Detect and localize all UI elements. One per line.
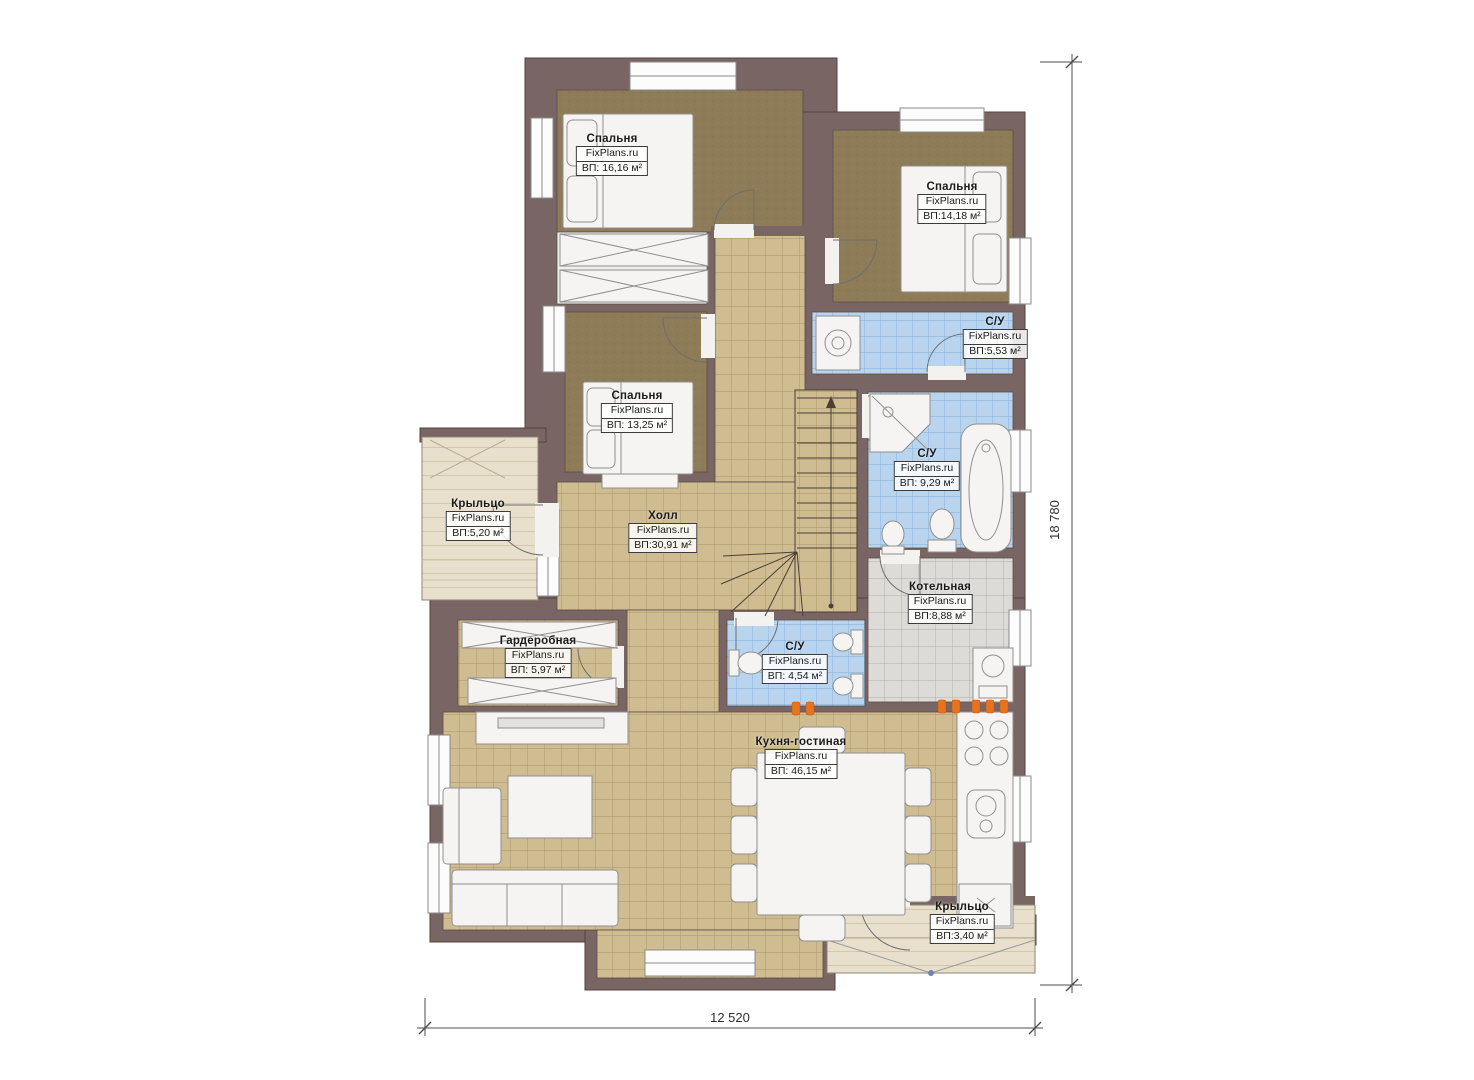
room-name: Гардеробная xyxy=(500,635,577,647)
brand-watermark: FixPlans.ru xyxy=(766,750,836,764)
room-name: С/У xyxy=(985,316,1004,328)
room-label-box: FixPlans.ru ВП: 5,97 м² xyxy=(505,648,571,678)
room-label-bathroom-small: С/У FixPlans.ru ВП: 4,54 м² xyxy=(762,641,828,684)
room-label-box: FixPlans.ru ВП:5,53 м² xyxy=(963,329,1028,359)
brand-watermark: FixPlans.ru xyxy=(602,404,672,418)
room-area: ВП:5,53 м² xyxy=(964,344,1027,359)
brand-watermark: FixPlans.ru xyxy=(909,595,972,609)
room-name: Крыльцо xyxy=(935,901,989,913)
room-label-box: FixPlans.ru ВП: 16,16 м² xyxy=(576,146,648,176)
floor-stairs xyxy=(795,390,857,612)
floor-plan-drawing xyxy=(0,0,1474,1080)
room-area: ВП: 13,25 м² xyxy=(602,418,672,433)
toilet xyxy=(729,650,764,676)
floor-plan-page: Спальня FixPlans.ru ВП: 16,16 м² Спальня… xyxy=(0,0,1474,1080)
room-area: ВП:8,88 м² xyxy=(909,609,972,624)
room-label-box: FixPlans.ru ВП: 46,15 м² xyxy=(765,749,837,779)
room-label-box: FixPlans.ru ВП: 13,25 м² xyxy=(601,403,673,433)
dimension-height-label: 18 780 xyxy=(1047,485,1067,555)
brand-watermark: FixPlans.ru xyxy=(895,462,959,476)
room-name: Кухня-гостиная xyxy=(756,736,847,748)
sofa xyxy=(452,870,618,926)
room-label-box: FixPlans.ru ВП:8,88 м² xyxy=(908,594,973,624)
boiler-unit xyxy=(973,648,1013,702)
room-area: ВП: 16,16 м² xyxy=(577,161,647,176)
sink xyxy=(882,521,904,554)
room-area: ВП:5,20 м² xyxy=(447,526,510,541)
room-label-porch-bottom: Крыльцо FixPlans.ru ВП:3,40 м² xyxy=(930,901,995,944)
room-label-kitchen-living: Кухня-гостиная FixPlans.ru ВП: 46,15 м² xyxy=(756,736,847,779)
room-label-box: FixPlans.ru ВП:14,18 м² xyxy=(917,194,986,224)
room-name: С/У xyxy=(917,448,936,460)
coffee-table xyxy=(508,776,592,838)
room-label-boiler-room: Котельная FixPlans.ru ВП:8,88 м² xyxy=(908,581,973,624)
room-area: ВП: 46,15 м² xyxy=(766,764,836,779)
dimension-width-label: 12 520 xyxy=(695,1010,765,1025)
room-label-box: FixPlans.ru ВП:30,91 м² xyxy=(628,523,697,553)
room-name: С/У xyxy=(785,641,804,653)
washing-machine xyxy=(816,316,860,370)
room-label-box: FixPlans.ru ВП:3,40 м² xyxy=(930,914,995,944)
brand-watermark: FixPlans.ru xyxy=(577,147,647,161)
room-name: Крыльцо xyxy=(451,498,505,510)
room-label-bedroom-1: Спальня FixPlans.ru ВП: 16,16 м² xyxy=(576,133,648,176)
tv-console xyxy=(476,712,628,744)
room-label-wardrobe-room: Гардеробная FixPlans.ru ВП: 5,97 м² xyxy=(500,635,577,678)
room-name: Спальня xyxy=(586,133,637,145)
floor-hall-passage xyxy=(627,610,719,712)
room-name: Котельная xyxy=(909,581,971,593)
room-label-porch-left: Крыльцо FixPlans.ru ВП:5,20 м² xyxy=(446,498,511,541)
brand-watermark: FixPlans.ru xyxy=(506,649,570,663)
room-area: ВП:30,91 м² xyxy=(629,538,696,553)
toilet xyxy=(928,509,956,552)
room-label-bathroom-top: С/У FixPlans.ru ВП:5,53 м² xyxy=(963,316,1028,359)
brand-watermark: FixPlans.ru xyxy=(918,195,985,209)
brand-watermark: FixPlans.ru xyxy=(763,655,827,669)
shower xyxy=(870,394,930,452)
room-area: ВП: 9,29 м² xyxy=(895,476,959,491)
room-label-box: FixPlans.ru ВП: 4,54 м² xyxy=(762,654,828,684)
brand-watermark: FixPlans.ru xyxy=(629,524,696,538)
room-area: ВП:3,40 м² xyxy=(931,929,994,944)
room-label-box: FixPlans.ru ВП: 9,29 м² xyxy=(894,461,960,491)
room-area: ВП: 4,54 м² xyxy=(763,669,827,684)
room-label-bedroom-3: Спальня FixPlans.ru ВП: 13,25 м² xyxy=(601,390,673,433)
room-name: Холл xyxy=(648,510,678,522)
room-label-bedroom-2: Спальня FixPlans.ru ВП:14,18 м² xyxy=(917,181,986,224)
room-area: ВП:14,18 м² xyxy=(918,209,985,224)
room-area: ВП: 5,97 м² xyxy=(506,663,570,678)
room-name: Спальня xyxy=(611,390,662,402)
brand-watermark: FixPlans.ru xyxy=(964,330,1027,344)
floor-hall-corridor xyxy=(715,232,805,482)
room-label-box: FixPlans.ru ВП:5,20 м² xyxy=(446,511,511,541)
room-label-bathroom-main: С/У FixPlans.ru ВП: 9,29 м² xyxy=(894,448,960,491)
room-label-hall: Холл FixPlans.ru ВП:30,91 м² xyxy=(628,510,697,553)
bathtub xyxy=(961,424,1011,552)
room-name: Спальня xyxy=(926,181,977,193)
kitchen-counter xyxy=(957,712,1013,928)
brand-watermark: FixPlans.ru xyxy=(931,915,994,929)
armchair xyxy=(443,788,501,864)
brand-watermark: FixPlans.ru xyxy=(447,512,510,526)
